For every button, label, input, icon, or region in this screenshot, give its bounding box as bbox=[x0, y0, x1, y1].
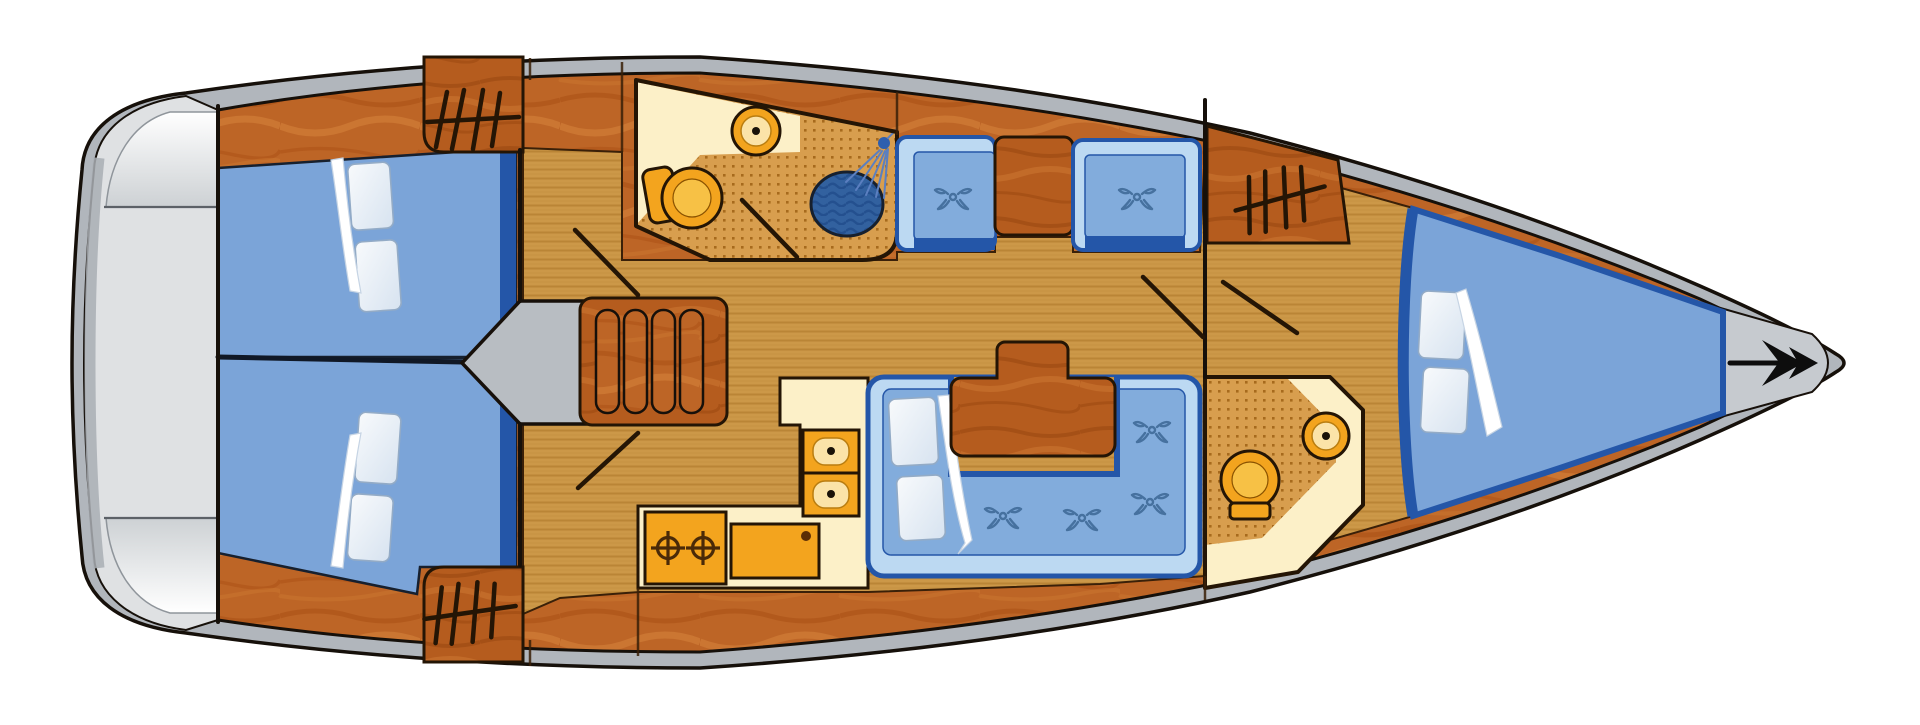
pillow bbox=[355, 239, 402, 312]
pillow bbox=[347, 162, 394, 231]
step bbox=[652, 310, 675, 413]
dinette bbox=[868, 342, 1200, 576]
v-berth bbox=[1403, 209, 1724, 516]
swim-platform bbox=[84, 96, 218, 630]
pillow bbox=[888, 397, 938, 466]
yacht-floor-plan bbox=[0, 0, 1920, 725]
stove bbox=[645, 512, 726, 584]
step bbox=[680, 310, 703, 413]
pillow bbox=[1420, 367, 1469, 434]
yacht-floor-plan-canvas bbox=[0, 0, 1920, 725]
step bbox=[624, 310, 647, 413]
pillow bbox=[347, 493, 394, 562]
washbasin bbox=[732, 107, 780, 155]
twin-sinks bbox=[803, 430, 859, 516]
washbasin bbox=[1303, 413, 1349, 459]
pillow bbox=[896, 475, 945, 541]
toilet bbox=[642, 166, 722, 228]
step bbox=[596, 310, 619, 413]
refrigerator bbox=[731, 524, 819, 578]
salon-seat-right bbox=[1073, 140, 1200, 250]
salon-seat-left bbox=[897, 137, 995, 250]
forward-hanging-locker bbox=[1207, 126, 1349, 243]
toilet bbox=[1221, 451, 1279, 519]
pillow bbox=[355, 412, 402, 485]
salon-cabinet-block bbox=[995, 137, 1073, 235]
